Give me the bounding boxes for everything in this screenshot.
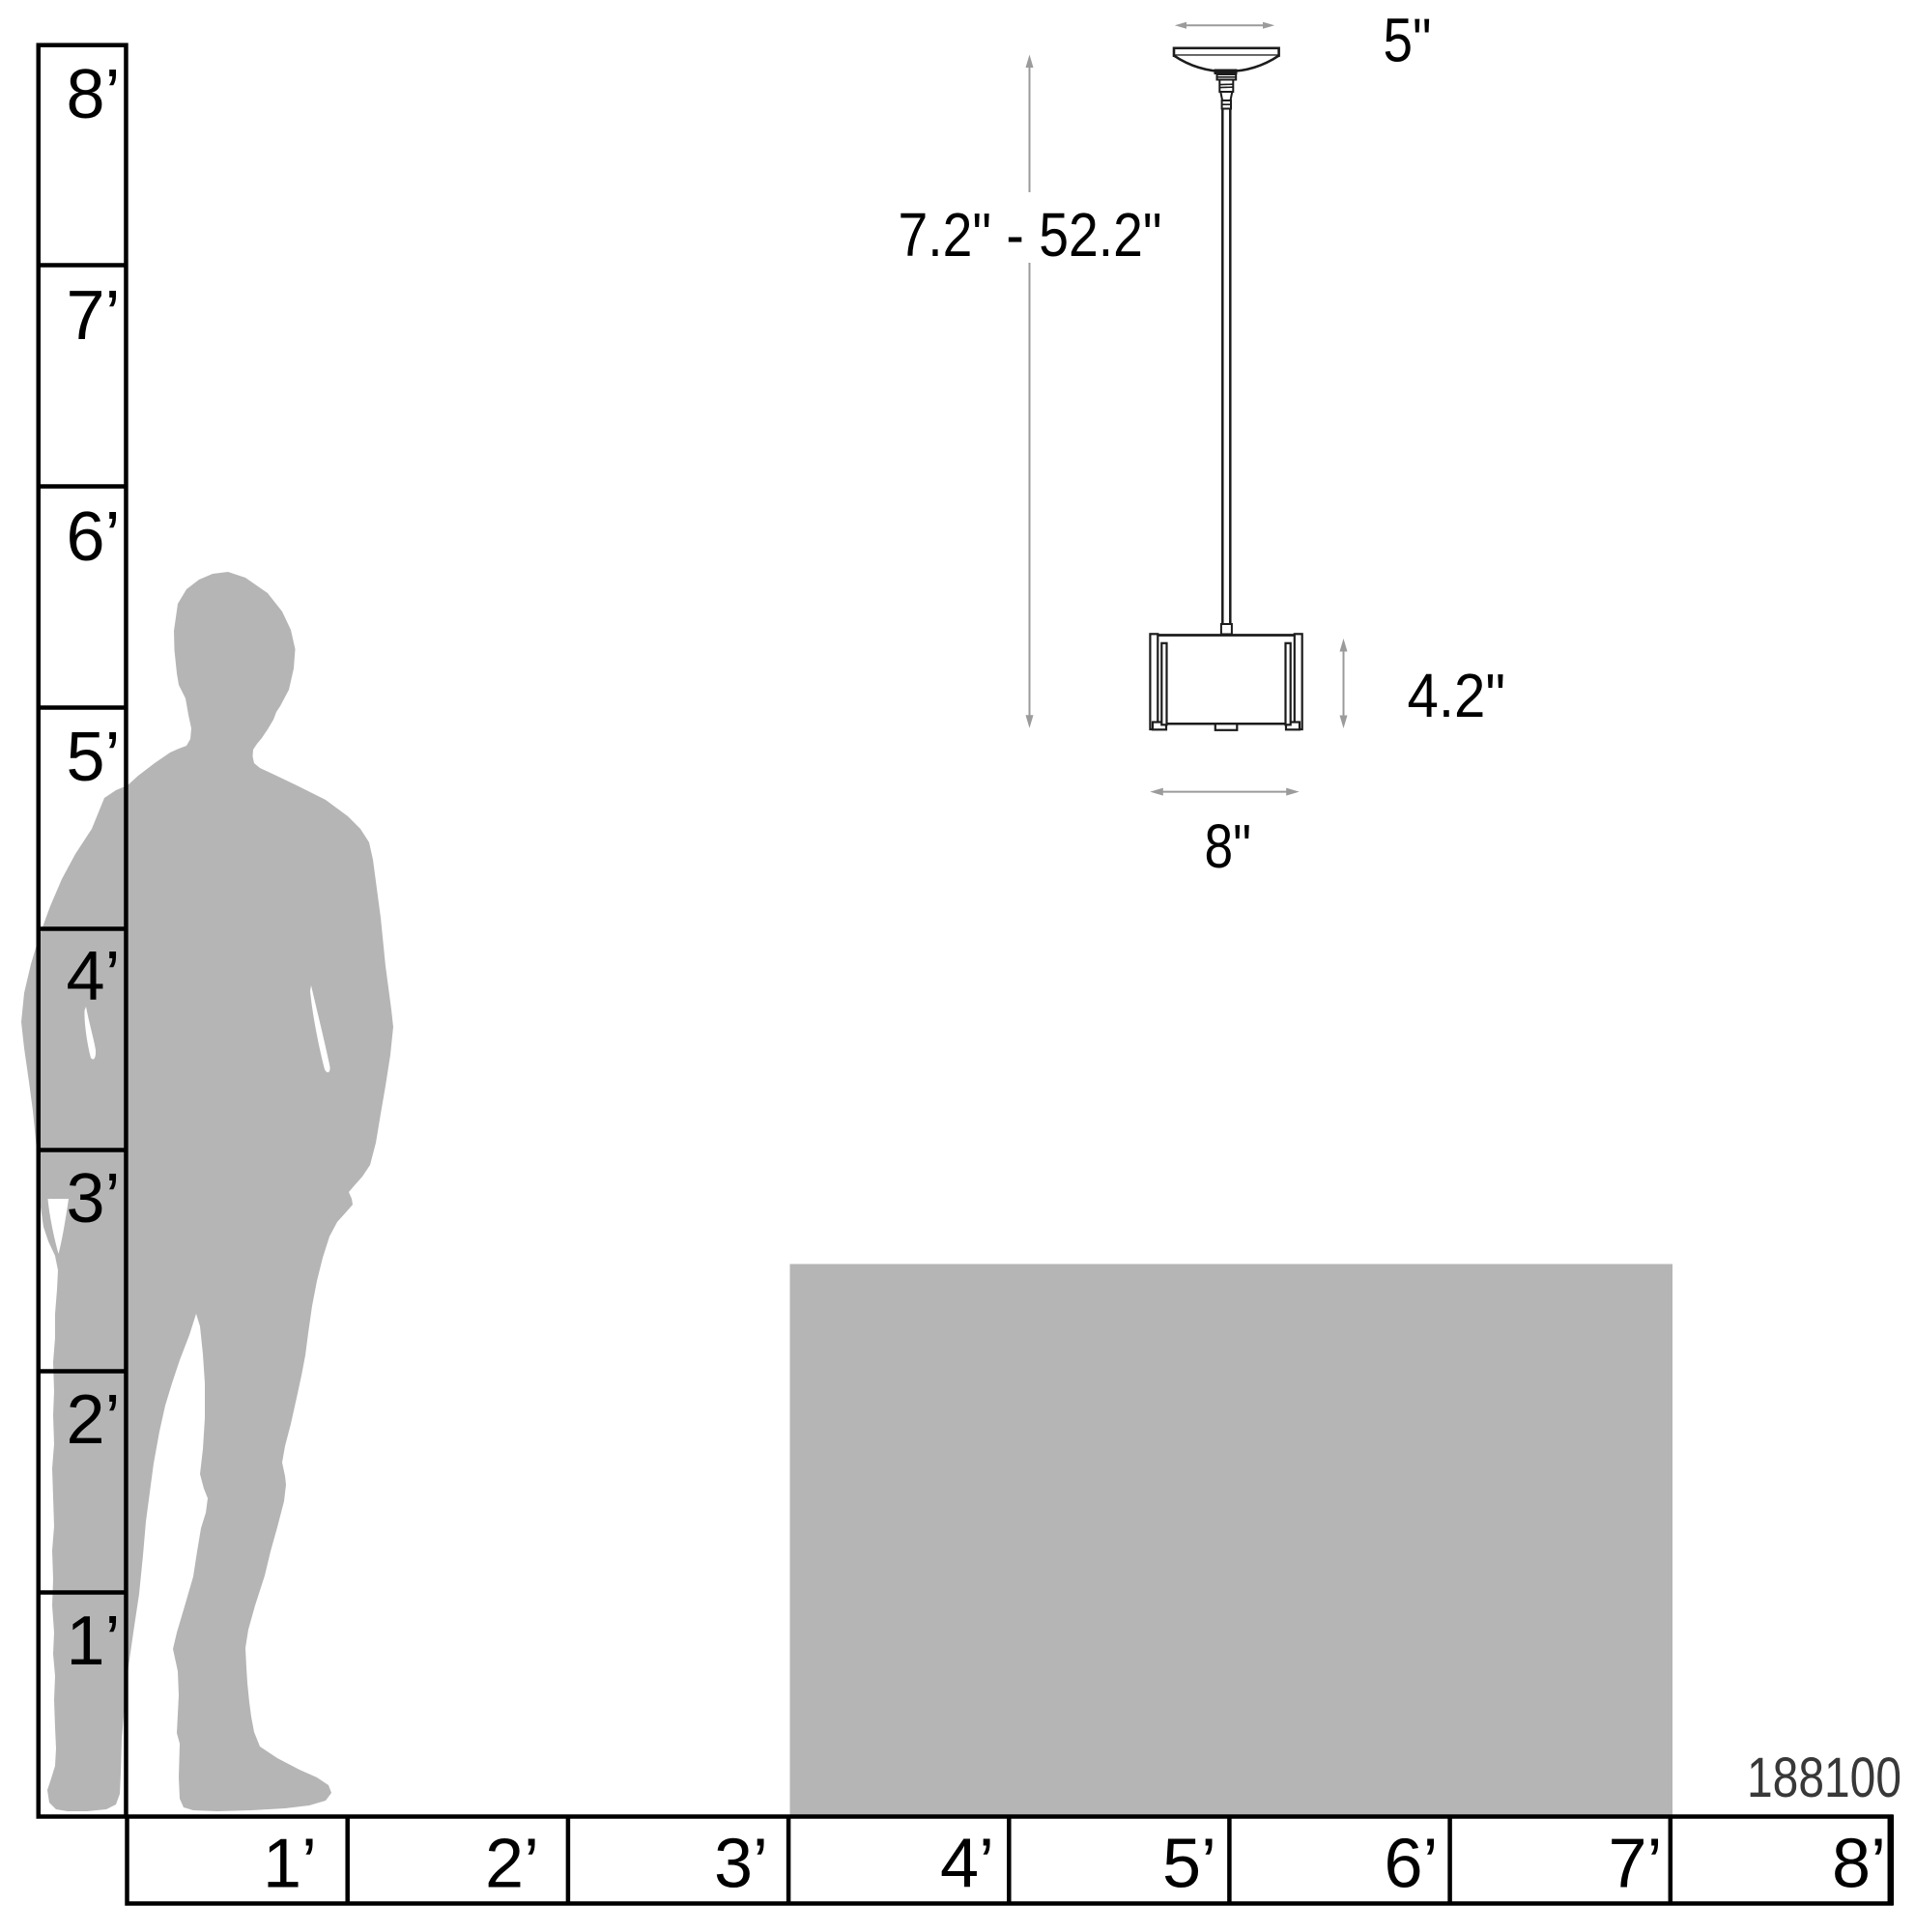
svg-text:4’: 4’ bbox=[67, 938, 121, 1015]
svg-text:5": 5" bbox=[1384, 6, 1432, 75]
svg-text:8": 8" bbox=[1205, 811, 1252, 881]
svg-text:6’: 6’ bbox=[67, 498, 121, 576]
svg-text:8’: 8’ bbox=[1832, 1826, 1886, 1903]
svg-text:5’: 5’ bbox=[67, 719, 121, 796]
svg-text:4.2": 4.2" bbox=[1408, 661, 1506, 730]
svg-text:3’: 3’ bbox=[714, 1826, 768, 1903]
svg-text:1’: 1’ bbox=[67, 1603, 121, 1680]
svg-text:1’: 1’ bbox=[263, 1826, 317, 1903]
svg-text:7’: 7’ bbox=[67, 277, 121, 355]
svg-text:2’: 2’ bbox=[485, 1826, 539, 1903]
svg-text:8’: 8’ bbox=[67, 56, 121, 133]
svg-text:5’: 5’ bbox=[1162, 1826, 1216, 1903]
svg-text:7.2" - 52.2": 7.2" - 52.2" bbox=[899, 200, 1162, 270]
svg-text:188100: 188100 bbox=[1747, 1747, 1901, 1809]
svg-text:3’: 3’ bbox=[67, 1160, 121, 1237]
svg-text:6’: 6’ bbox=[1384, 1826, 1438, 1903]
svg-text:4’: 4’ bbox=[940, 1826, 994, 1903]
svg-text:2’: 2’ bbox=[67, 1381, 121, 1459]
svg-text:7’: 7’ bbox=[1608, 1826, 1662, 1903]
